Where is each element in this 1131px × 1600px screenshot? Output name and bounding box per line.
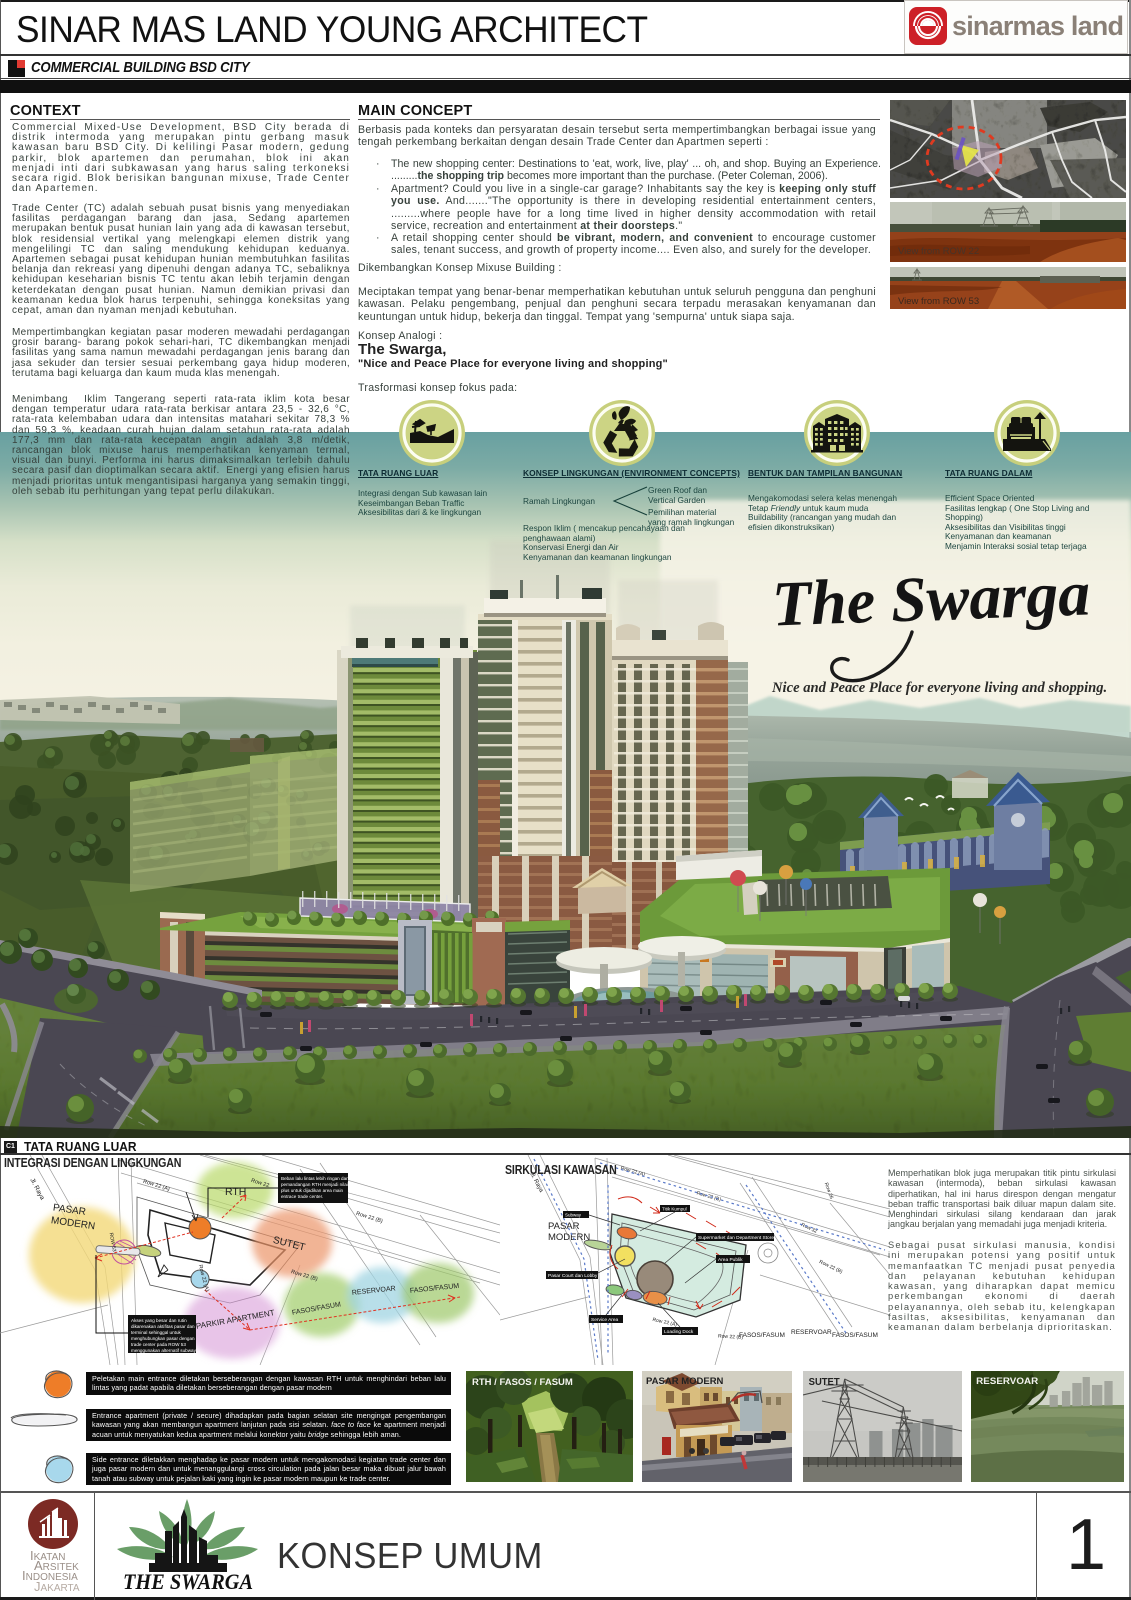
- svg-text:Subway: Subway: [565, 1213, 582, 1218]
- svg-text:Row 26: Row 26: [823, 1182, 835, 1200]
- svg-text:Row 22 (A): Row 22 (A): [652, 1317, 678, 1328]
- svg-text:terminal sehinggal untuk: terminal sehinggal untuk: [131, 1330, 181, 1335]
- svg-text:FASOS/FASUM: FASOS/FASUM: [739, 1332, 785, 1339]
- svg-text:Supermarket dan Department Sto: Supermarket dan Department Store: [698, 1235, 774, 1241]
- svg-text:View from ROW 53: View from ROW 53: [898, 296, 979, 307]
- svg-text:Beban lalu lintas lebih ringan: Beban lalu lintas lebih ringan dan: [281, 1176, 349, 1181]
- svg-text:Row 22 (A): Row 22 (A): [620, 1165, 646, 1178]
- svg-text:FASOS/FASUM: FASOS/FASUM: [832, 1332, 878, 1339]
- svg-text:pemandangan RTH menjadi nilai: pemandangan RTH menjadi nilai: [281, 1182, 348, 1187]
- svg-text:View from ROW 22: View from ROW 22: [898, 246, 979, 257]
- svg-text:PASAR MODERN: PASAR MODERN: [646, 1376, 724, 1387]
- svg-text:Area Publik: Area Publik: [718, 1257, 743, 1263]
- svg-text:dikarenakan aktifitas pasar da: dikarenakan aktifitas pasar dan: [131, 1324, 195, 1329]
- svg-text:Akses yang besar dan rutin: Akses yang besar dan rutin: [131, 1318, 187, 1323]
- svg-text:Jl. Raya: Jl. Raya: [28, 1177, 45, 1201]
- svg-text:RTH / FASOS / FASUM: RTH / FASOS / FASUM: [472, 1377, 573, 1388]
- svg-text:RESERVOAR: RESERVOAR: [976, 1376, 1038, 1387]
- svg-text:trade center pada ROW 53: trade center pada ROW 53: [131, 1342, 186, 1347]
- svg-text:THE SWARGA: THE SWARGA: [123, 1569, 253, 1594]
- svg-text:Titik Kumpul: Titik Kumpul: [662, 1207, 687, 1212]
- svg-text:MODERN: MODERN: [548, 1232, 590, 1243]
- svg-text:Loading Dock: Loading Dock: [664, 1329, 694, 1335]
- svg-text:Row 22 (B): Row 22 (B): [818, 1259, 844, 1275]
- svg-text:plus untuk dijadikan area main: plus untuk dijadikan area main: [281, 1188, 343, 1193]
- svg-text:RESERVOAR: RESERVOAR: [791, 1329, 832, 1336]
- svg-text:menghubungkan pasar dengan: menghubungkan pasar dengan: [131, 1336, 195, 1341]
- svg-text:menggunakan alternatif subway: menggunakan alternatif subway: [131, 1348, 197, 1353]
- svg-text:Pasar Court dan Lobby: Pasar Court dan Lobby: [548, 1273, 598, 1279]
- svg-text:SUTET: SUTET: [809, 1377, 840, 1388]
- svg-text:Service Area: Service Area: [591, 1317, 619, 1323]
- svg-text:PASAR: PASAR: [548, 1221, 580, 1232]
- svg-text:Row 22 (A): Row 22 (A): [142, 1179, 170, 1193]
- svg-text:entrace trade center.: entrace trade center.: [281, 1194, 323, 1199]
